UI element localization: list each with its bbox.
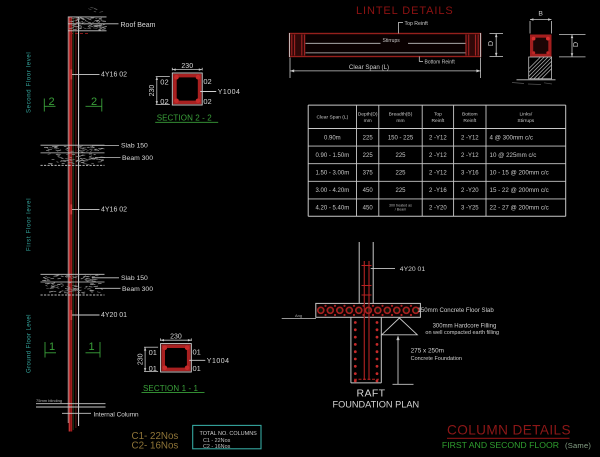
svg-text:1: 1 (89, 341, 95, 353)
svg-text:on well compacted earth fillin: on well compacted earth filling (425, 330, 499, 336)
svg-text:Top Reinft: Top Reinft (405, 21, 429, 27)
svg-text:02: 02 (160, 97, 168, 106)
svg-text:SECTION 1 - 1: SECTION 1 - 1 (143, 384, 199, 393)
svg-text:4Y16 02: 4Y16 02 (101, 72, 127, 79)
svg-text:Beam 300: Beam 300 (122, 155, 153, 162)
svg-text:LINTEL DETAILS: LINTEL DETAILS (356, 5, 454, 17)
svg-text:B: B (538, 11, 543, 18)
svg-text:225: 225 (395, 171, 406, 177)
svg-text:Beam 300: Beam 300 (122, 286, 153, 293)
svg-text:10 @ 225mm c/c: 10 @ 225mm c/c (490, 152, 537, 159)
svg-text:75mm blinding: 75mm blinding (36, 398, 62, 403)
svg-text:Clear Span (L): Clear Span (L) (349, 64, 389, 71)
svg-text:Clear Span (L): Clear Span (L) (316, 115, 348, 121)
svg-text:mm: mm (396, 119, 404, 124)
svg-text:0.90m: 0.90m (324, 135, 341, 141)
svg-text:230: 230 (170, 334, 182, 341)
svg-text:Ang: Ang (295, 313, 302, 318)
svg-text:225: 225 (363, 153, 374, 159)
svg-text:2 -Y20: 2 -Y20 (429, 206, 447, 212)
svg-text:Stirrups: Stirrups (517, 118, 534, 124)
svg-text:0.90 - 1.50m: 0.90 - 1.50m (316, 153, 350, 159)
svg-text:Ground Floor Level: Ground Floor Level (27, 314, 33, 373)
svg-text:225: 225 (395, 188, 406, 194)
svg-text:22 - 27 @ 200mm c/c: 22 - 27 @ 200mm c/c (490, 205, 549, 212)
svg-text:Internal Column: Internal Column (94, 412, 140, 419)
svg-text:2 -Y12: 2 -Y12 (461, 135, 479, 141)
svg-text:15 - 22 @ 200mm c/c: 15 - 22 @ 200mm c/c (490, 187, 549, 194)
svg-text:3 -Y25: 3 -Y25 (461, 206, 479, 212)
svg-text:275 x 250m: 275 x 250m (411, 348, 444, 355)
svg-text:01: 01 (149, 364, 157, 373)
svg-text:First Floor level: First Floor level (27, 198, 33, 251)
svg-text:300mm Hardcore Filling: 300mm Hardcore Filling (433, 323, 497, 329)
svg-text:D: D (571, 42, 580, 47)
svg-text:4Y16 02: 4Y16 02 (101, 207, 127, 214)
svg-text:01: 01 (193, 348, 201, 357)
svg-text:Bottom Reinft: Bottom Reinft (425, 59, 456, 65)
svg-text:C2 - 16Nos: C2 - 16Nos (203, 444, 231, 450)
svg-text:Concrete Foundation: Concrete Foundation (411, 356, 462, 362)
svg-text:2 -Y12: 2 -Y12 (429, 171, 447, 177)
svg-text:1.50 - 3.00m: 1.50 - 3.00m (316, 171, 350, 177)
svg-text:450: 450 (363, 206, 374, 212)
svg-text:3 -Y16: 3 -Y16 (461, 171, 479, 177)
svg-text:Second Floor level: Second Floor level (27, 52, 33, 113)
svg-text:150mm Concrete Floor Slab: 150mm Concrete Floor Slab (418, 307, 495, 314)
svg-text:450: 450 (363, 188, 374, 194)
svg-text:Reinft: Reinft (463, 118, 476, 124)
svg-text:RAFT: RAFT (356, 387, 385, 399)
svg-text:02: 02 (203, 97, 211, 106)
svg-text:2 -Y12: 2 -Y12 (461, 153, 479, 159)
svg-text:Slab 150: Slab 150 (121, 275, 148, 282)
svg-text:375: 375 (363, 171, 374, 177)
svg-text:2 -Y16: 2 -Y16 (429, 188, 447, 194)
svg-text:Stirrups: Stirrups (383, 38, 401, 44)
svg-text:2 -Y12: 2 -Y12 (429, 135, 447, 141)
svg-text:COLUMN DETAILS: COLUMN DETAILS (447, 423, 571, 438)
svg-text:4 @ 300mm c/c: 4 @ 300mm c/c (490, 134, 533, 141)
svg-text:Top: Top (434, 112, 442, 118)
svg-text:Bottom: Bottom (462, 112, 478, 118)
svg-text:01: 01 (149, 348, 157, 357)
svg-text:225: 225 (363, 135, 374, 141)
svg-text:Reinft: Reinft (432, 118, 445, 124)
svg-text:FIRST AND SECOND FLOOR: FIRST AND SECOND FLOOR (442, 440, 559, 450)
svg-text:(Same): (Same) (565, 441, 591, 450)
svg-text:2 -Y12: 2 -Y12 (429, 153, 447, 159)
svg-text:Y1004: Y1004 (218, 89, 241, 96)
svg-text:Depth(D): Depth(D) (358, 112, 378, 118)
svg-text:150 - 225: 150 - 225 (388, 135, 414, 141)
svg-text:4.20 - 5.40m: 4.20 - 5.40m (316, 206, 350, 212)
svg-text:D: D (486, 41, 495, 46)
svg-text:SECTION 2 - 2: SECTION 2 - 2 (157, 114, 213, 123)
svg-text:/ Beam: / Beam (395, 208, 406, 212)
svg-text:Roof Beam: Roof Beam (121, 22, 156, 29)
svg-text:mm: mm (364, 119, 372, 124)
svg-text:02: 02 (160, 78, 168, 87)
svg-text:230: 230 (149, 85, 156, 97)
svg-text:230: 230 (138, 353, 145, 365)
svg-text:10 - 15 @ 200mm c/c: 10 - 15 @ 200mm c/c (490, 170, 549, 177)
svg-text:2 -Y20: 2 -Y20 (461, 188, 479, 194)
svg-text:C2- 16Nos: C2- 16Nos (132, 440, 179, 451)
svg-text:Y1004: Y1004 (207, 358, 230, 365)
svg-text:Breadth(B): Breadth(B) (389, 112, 413, 118)
svg-text:230: 230 (181, 63, 193, 70)
svg-text:TOTAL NO. COLUMNS: TOTAL NO. COLUMNS (200, 431, 258, 437)
svg-text:Slab 150: Slab 150 (121, 142, 148, 149)
svg-text:FOUNDATION PLAN: FOUNDATION PLAN (332, 400, 419, 410)
svg-text:3.00 - 4.20m: 3.00 - 4.20m (316, 188, 350, 194)
svg-text:02: 02 (203, 77, 211, 86)
svg-text:225: 225 (395, 153, 406, 159)
svg-text:1: 1 (49, 341, 55, 353)
svg-text:4Y20 01: 4Y20 01 (400, 266, 426, 273)
svg-text:Links/: Links/ (519, 112, 532, 118)
svg-text:01: 01 (193, 364, 201, 373)
svg-text:4Y20 01: 4Y20 01 (101, 312, 127, 319)
